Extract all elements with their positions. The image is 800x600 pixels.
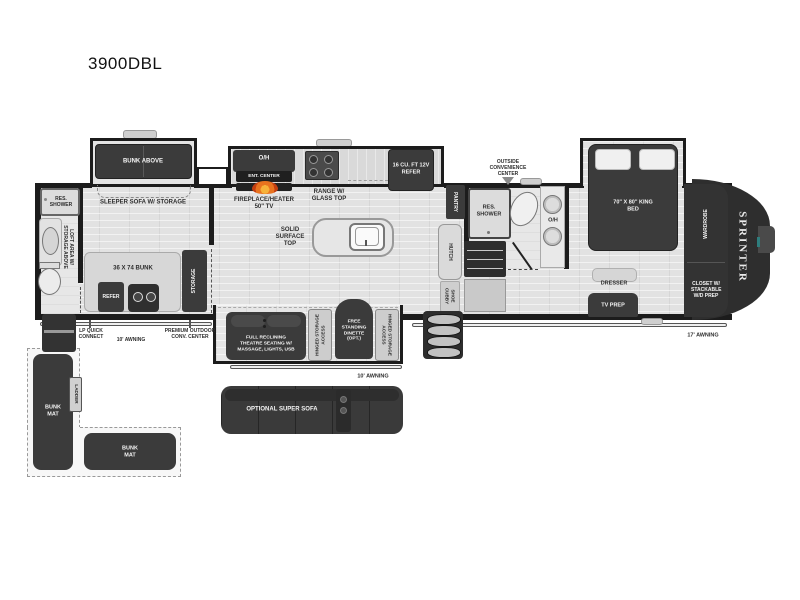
hitch-pin <box>758 226 775 253</box>
rear-awning-label: 10' AWNING <box>117 337 146 343</box>
tv-prep-label: TV PREP <box>601 303 625 310</box>
range-burner-2 <box>324 155 333 164</box>
sofa-cupholder-1 <box>340 396 347 403</box>
door-awning-line <box>230 365 402 369</box>
bath-wall-tab <box>520 178 542 185</box>
bath-overhead-label: O/H <box>548 218 558 225</box>
closet-label: CLOSET W/ STACKABLE W/D PREP <box>691 281 721 299</box>
entry-step-4 <box>427 347 461 358</box>
entry-step-1 <box>427 314 461 325</box>
ent-center-label: ENT. CENTER <box>248 174 279 180</box>
range-burner-1 <box>309 155 318 164</box>
theatre-cup-1 <box>263 319 266 322</box>
theatre-cushion-right <box>267 315 301 327</box>
stair-tread-line-2 <box>467 259 503 260</box>
island-sink-basin <box>355 227 379 246</box>
vanity-sink-1 <box>543 195 562 214</box>
fireplace-label: FIREPLACE/HEATER 50" TV <box>233 197 295 211</box>
dresser-label: DRESSER <box>601 281 628 288</box>
floorplan-canvas: 3900DBL BUNK ABOVE SLEEPER SOFA W/ STORA… <box>0 0 800 600</box>
front-awning-label: 17' AWNING <box>687 333 718 340</box>
rear-sink <box>42 227 59 255</box>
sleeper-sofa-outline <box>97 185 191 198</box>
counter-overhang-dash <box>348 180 388 181</box>
cooktop-burner-1 <box>133 292 143 302</box>
storage-tray-line <box>44 330 74 333</box>
bath-door-dash <box>508 269 538 270</box>
stair-tread-line-3 <box>467 268 503 269</box>
bunkroom-wall <box>209 187 214 245</box>
bunk-mat-vertical-label: BUNK MAT <box>41 404 65 417</box>
fireplace-flame <box>252 181 278 194</box>
entry-step-2 <box>427 325 461 336</box>
super-sofa-back <box>225 389 399 401</box>
hinged-storage-right-label: HINGED STORAGE ACCESS <box>382 314 393 356</box>
wardrobe-closet-divider <box>687 262 725 263</box>
overhead-kitchen-label: O/H <box>259 155 270 162</box>
theatre-cup-2 <box>263 325 266 328</box>
pantry-label: PANTRY <box>452 192 458 212</box>
super-sofa-label: OPTIONAL SUPER SOFA <box>246 406 317 413</box>
bunk-label: 36 X 74 BUNK <box>113 265 153 272</box>
island-faucet <box>365 240 367 246</box>
bunkroom-refer-label: REFER <box>103 294 120 300</box>
outside-convenience-marker <box>502 177 514 185</box>
bedroom-wall-tab <box>641 318 663 325</box>
outside-convenience-label: OUTSIDE CONVENIENCE CENTER <box>481 159 535 177</box>
range-burner-3 <box>309 168 318 177</box>
dinette-label: FREE STANDING DINETTE (OPT.) <box>339 320 369 343</box>
loft-area-label: LOFT AREA W/ STORAGE ABOVE <box>62 225 74 269</box>
king-bed-label: 70" X 80" KING BED <box>613 199 653 212</box>
sleeper-sofa-label: SLEEPER SOFA W/ STORAGE <box>100 199 186 206</box>
wardrobe-label: WARDROBE <box>703 209 709 239</box>
mid-shower-drain <box>487 231 490 234</box>
storage-tray <box>42 314 76 352</box>
bunkroom-door-dash <box>211 249 212 313</box>
lp-tick <box>89 320 91 328</box>
shoe-cubby-label: SHOE CUBBY <box>445 286 456 306</box>
pillow-right <box>639 149 675 170</box>
premium-outdoor-label: PREMIUM OUTDOOR CONV. CENTER <box>163 328 217 340</box>
range-burner-4 <box>324 168 333 177</box>
theatre-cushion-left <box>231 315 265 327</box>
vanity-sink-2 <box>543 227 562 246</box>
range-label: RANGE W/ GLASS TOP <box>306 189 352 203</box>
stair-landing <box>464 279 506 312</box>
lp-quick-connect-label: LP QUICK CONNECT <box>76 328 106 340</box>
front-cap-logo: SPRINTER <box>735 211 748 283</box>
bunkroom-storage-label: STORAGE <box>191 269 197 294</box>
hutch-label: HUTCH <box>447 243 453 261</box>
rear-toilet <box>38 268 61 295</box>
stair-tread-line-1 <box>467 250 503 251</box>
floorplan-model-title: 3900DBL <box>88 55 162 72</box>
window-between-slides <box>197 167 228 186</box>
sofa-cupholder-2 <box>340 407 347 414</box>
bottom-wall-mid <box>400 314 424 320</box>
theatre-label: FULL RECLINING THEATRE SEATING W/ MASSAG… <box>237 335 295 352</box>
door-awning-label: 10' AWNING <box>357 374 388 381</box>
rear-bath-door-dash <box>80 287 81 313</box>
rear-shower-label: RES. SHOWER <box>46 196 76 208</box>
entry-step-3 <box>427 336 461 347</box>
pillow-left <box>595 149 631 170</box>
bunk-above-label: BUNK ABOVE <box>123 158 163 165</box>
cooktop-burner-2 <box>146 292 156 302</box>
premium-tick <box>189 320 191 328</box>
hitch-accent <box>757 237 760 247</box>
island-label: SOLID SURFACE TOP <box>271 227 309 249</box>
bunk-mat-zone-inner-edge <box>80 427 181 428</box>
hinged-storage-left-label: HINGED STORAGE ACCESS <box>315 314 326 356</box>
ladder-label: LADDER <box>73 384 79 403</box>
mid-shower-label: RES. SHOWER <box>474 204 504 217</box>
refrigerator-label: 16 CU. FT 12V REFER <box>392 162 430 175</box>
bunk-mat-horizontal-label: BUNK MAT <box>118 445 142 458</box>
